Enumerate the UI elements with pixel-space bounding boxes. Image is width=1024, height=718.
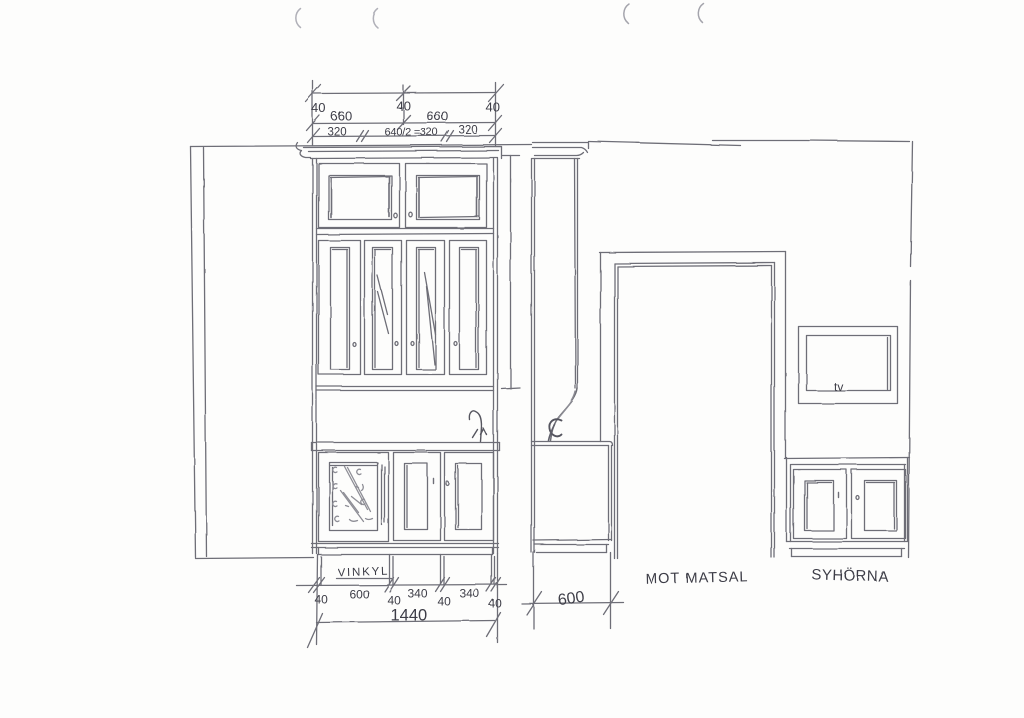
svg-text:MOT MATSAL: MOT MATSAL [645, 569, 748, 588]
svg-text:40: 40 [315, 593, 329, 607]
svg-text:600: 600 [350, 588, 370, 602]
svg-text:600: 600 [557, 589, 586, 610]
svg-text:40: 40 [312, 101, 326, 116]
svg-text:40: 40 [388, 594, 402, 608]
svg-text:320: 320 [459, 125, 478, 137]
svg-text:40: 40 [489, 597, 503, 611]
svg-text:340: 340 [408, 587, 428, 601]
svg-text:40: 40 [486, 100, 500, 115]
svg-text:340: 340 [460, 587, 480, 601]
svg-text:VINKYL: VINKYL [337, 566, 389, 580]
svg-text:1440: 1440 [391, 607, 428, 625]
svg-text:SYHÖRNA: SYHÖRNA [811, 565, 889, 586]
svg-text:40: 40 [438, 595, 452, 609]
svg-text:40: 40 [397, 99, 411, 114]
svg-text:660: 660 [427, 109, 449, 124]
svg-text:tv: tv [834, 380, 843, 394]
svg-text:660: 660 [331, 109, 353, 124]
